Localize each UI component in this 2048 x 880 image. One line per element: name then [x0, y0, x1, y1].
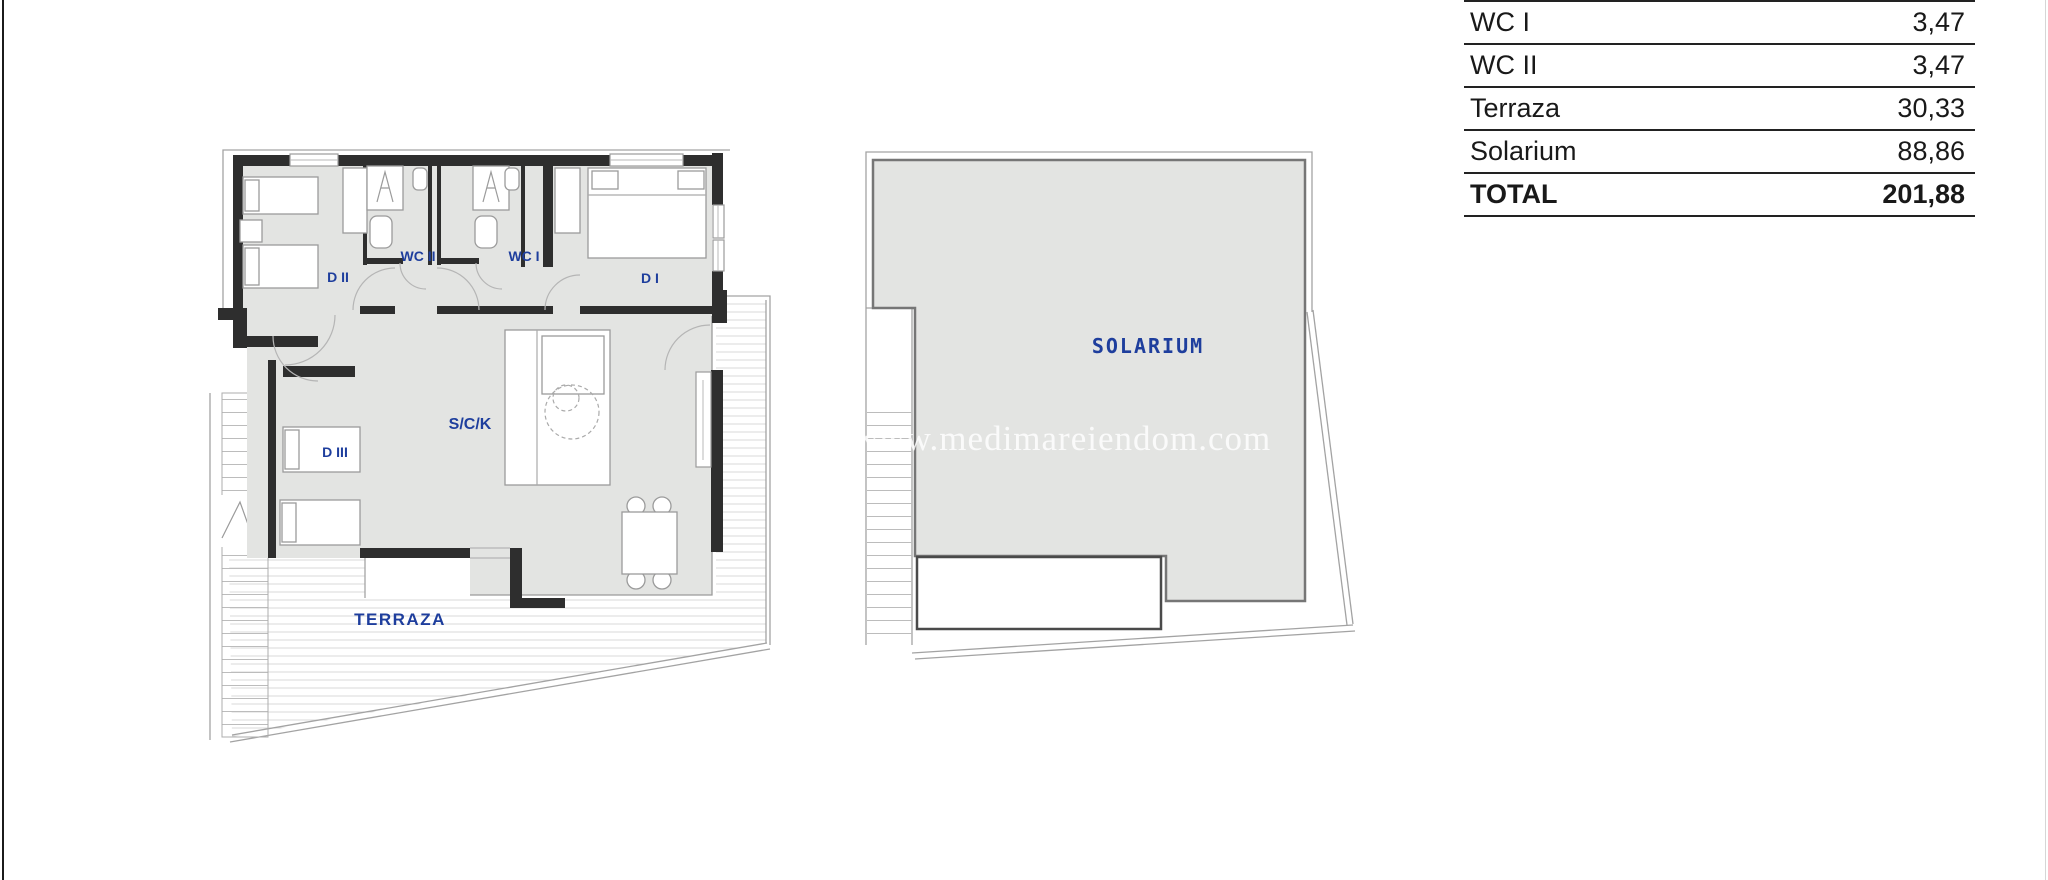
area-row-label: WC II	[1470, 50, 1538, 81]
area-table-row: WC I 3,47	[1464, 0, 1975, 45]
area-row-label: Terraza	[1470, 93, 1560, 124]
area-table: WC I 3,47 WC II 3,47 Terraza 30,33 Solar…	[1464, 0, 1975, 217]
area-row-value: 3,47	[1912, 50, 1965, 81]
area-row-value: 30,33	[1897, 93, 1965, 124]
room-label-terraza: TERRAZA	[354, 610, 446, 630]
area-row-value: 3,47	[1912, 7, 1965, 38]
room-label-d3: D III	[322, 444, 348, 460]
area-row-label: WC I	[1470, 7, 1530, 38]
watermark-text: www.medimareiendom.com	[853, 419, 1271, 459]
room-label-wc1: WC I	[508, 248, 539, 264]
solarium-lower-inset	[917, 557, 1161, 629]
area-table-row: Terraza 30,33	[1464, 88, 1975, 131]
apartment-plan-svg	[200, 140, 800, 760]
area-table-row: Solarium 88,86	[1464, 131, 1975, 174]
area-row-value: 88,86	[1897, 136, 1965, 167]
room-label-d2: D II	[327, 269, 349, 285]
area-row-value: 201,88	[1882, 179, 1965, 210]
area-row-label: Solarium	[1470, 136, 1577, 167]
page-left-border-line	[2, 0, 4, 880]
solarium-floor-fill	[873, 160, 1305, 601]
solarium-plan-svg	[850, 140, 1370, 680]
area-row-label: TOTAL	[1470, 179, 1558, 210]
area-table-total-row: TOTAL 201,88	[1464, 174, 1975, 217]
page-right-border-line	[2045, 0, 2046, 880]
room-label-d1: D I	[641, 270, 659, 286]
room-label-solarium: SOLARIUM	[1092, 334, 1204, 358]
area-table-row: WC II 3,47	[1464, 45, 1975, 88]
room-label-wc2: WC II	[401, 248, 436, 264]
floorplan-sheet: D II WC II WC I D I D III S/C/K TERRAZA	[0, 0, 2048, 880]
room-label-sck: S/C/K	[449, 416, 492, 434]
